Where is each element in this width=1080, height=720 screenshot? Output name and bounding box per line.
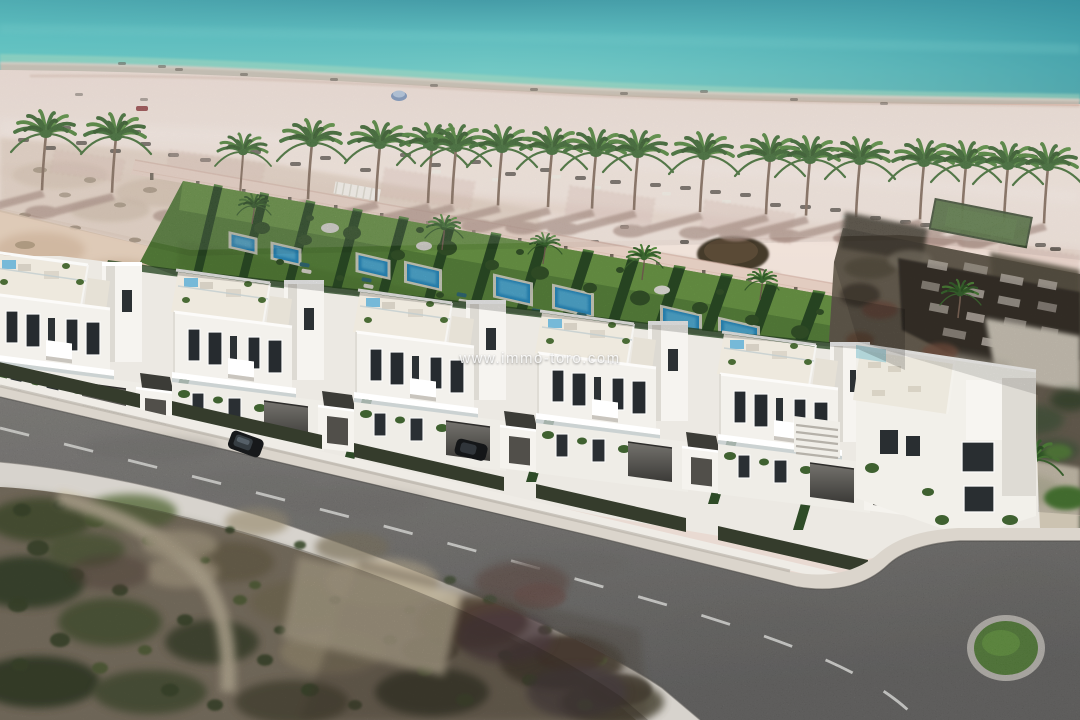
svg-text:www.immo-toro.com: www.immo-toro.com xyxy=(458,350,620,367)
